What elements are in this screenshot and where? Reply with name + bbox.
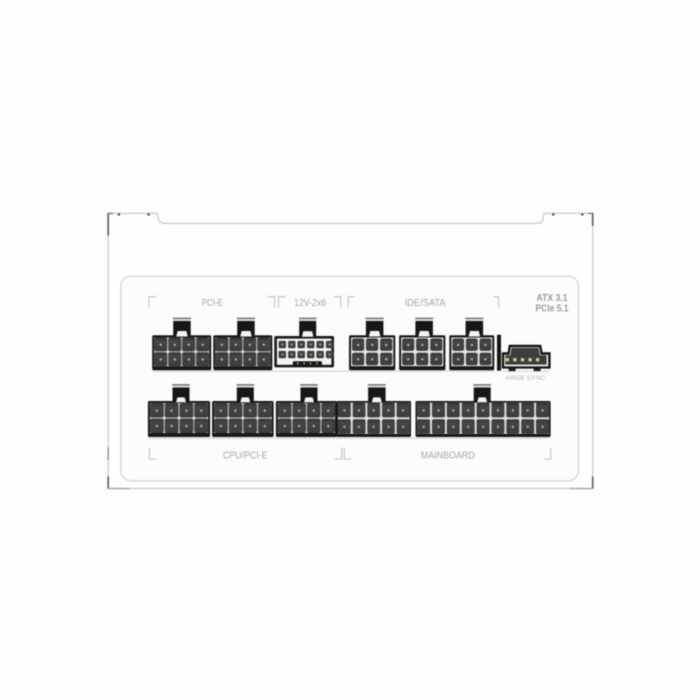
svg-text:12V-2x6: 12V-2x6: [294, 298, 326, 309]
svg-text:PCIe 5.1: PCIe 5.1: [536, 302, 569, 314]
svg-text:IDE/SATA: IDE/SATA: [405, 298, 446, 309]
svg-text:ARGB SYNC: ARGB SYNC: [505, 375, 545, 382]
svg-text:PCI-E: PCI-E: [202, 298, 223, 309]
svg-text:MAINBOARD: MAINBOARD: [421, 450, 475, 461]
svg-text:CPU/PCI-E: CPU/PCI-E: [223, 450, 268, 461]
